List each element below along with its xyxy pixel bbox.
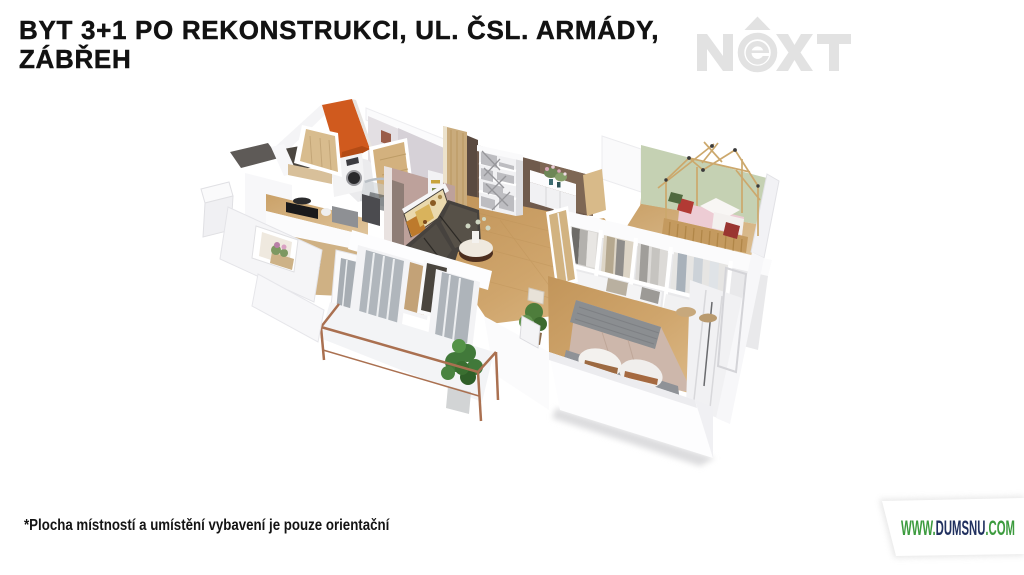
- svg-text:WWW.DUMSNU.COM: WWW.DUMSNU.COM: [901, 517, 1015, 540]
